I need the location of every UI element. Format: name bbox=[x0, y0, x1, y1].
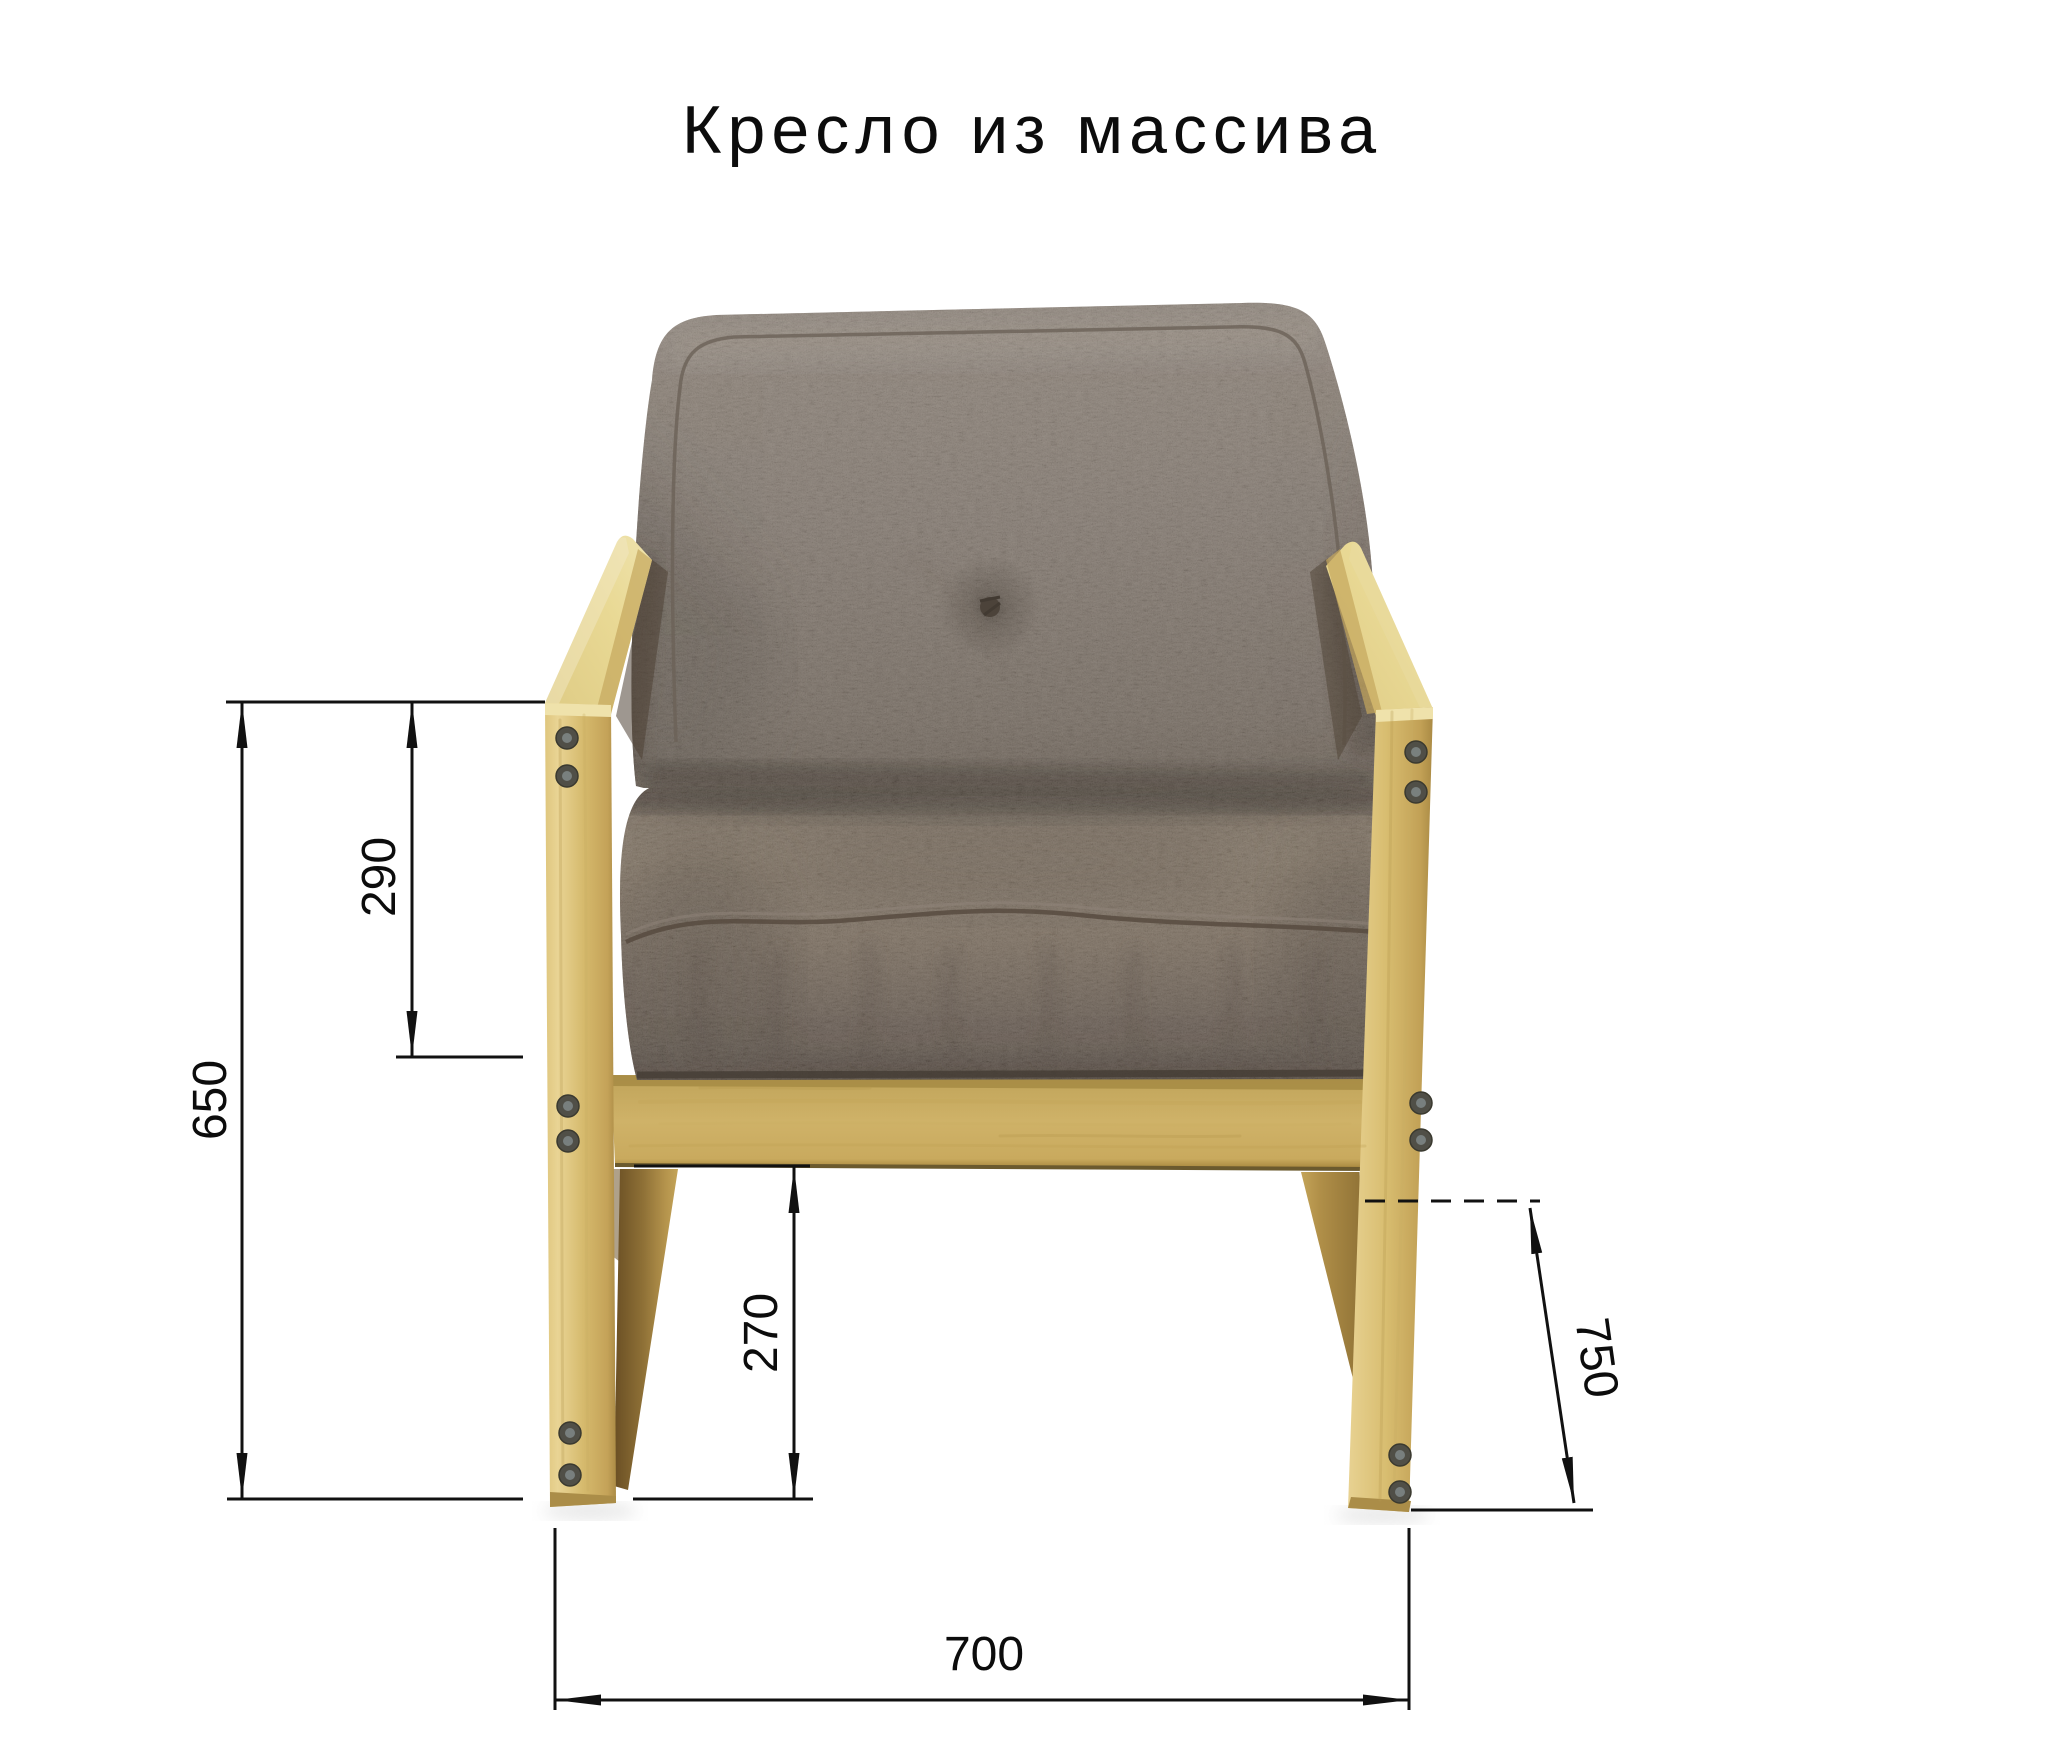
svg-text:270: 270 bbox=[735, 1293, 788, 1373]
svg-text:700: 700 bbox=[944, 1628, 1024, 1681]
svg-text:290: 290 bbox=[353, 837, 406, 917]
svg-text:650: 650 bbox=[184, 1060, 237, 1140]
svg-text:750: 750 bbox=[1565, 1314, 1629, 1401]
svg-text:Кресло из массива: Кресло из массива bbox=[682, 92, 1382, 168]
